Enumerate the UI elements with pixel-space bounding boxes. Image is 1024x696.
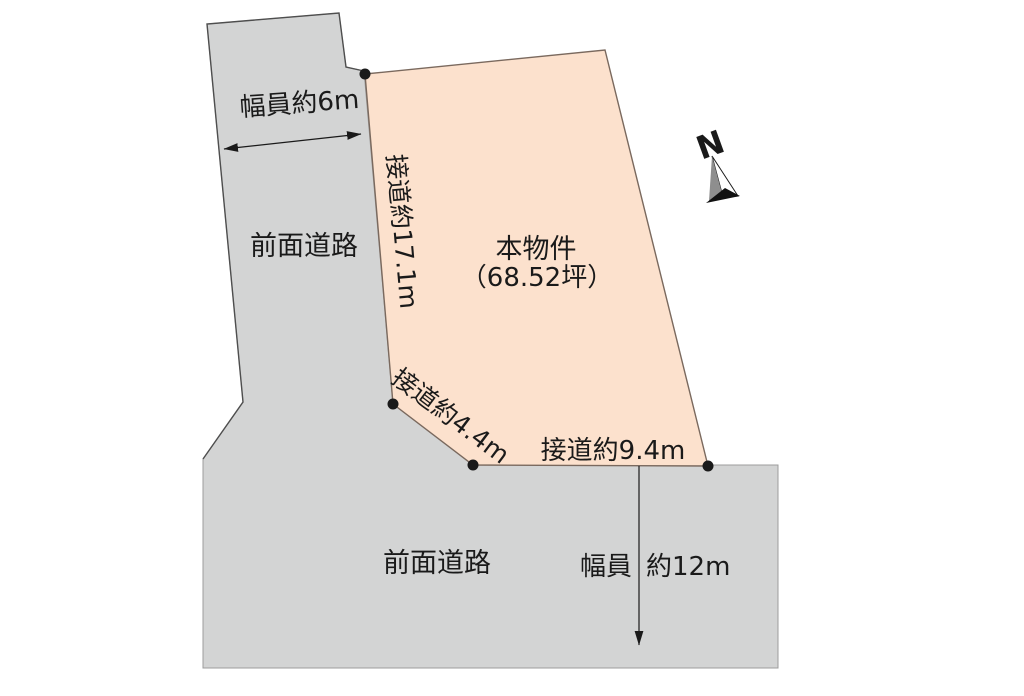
plot-map-page: N 幅員約6m 前面道路 接道約17.1m 本物件 （68.52坪） 接道約4.… xyxy=(0,0,1024,696)
north-label: N xyxy=(691,123,729,168)
parcel-area-label: （68.52坪） xyxy=(461,263,613,293)
boundary-point-northwest xyxy=(360,69,371,80)
boundary-point-southwest xyxy=(468,460,479,471)
road-width-bottom-label: 幅員 xyxy=(580,552,632,582)
north-arrow: N xyxy=(691,123,740,203)
frontage-south-label: 接道約9.4m xyxy=(541,436,686,466)
boundary-point-west xyxy=(388,399,399,410)
road-width-bottom-value: 約12m xyxy=(646,552,730,582)
plot-diagram: N 幅員約6m 前面道路 接道約17.1m 本物件 （68.52坪） 接道約4.… xyxy=(0,0,1024,696)
parcel-name-label: 本物件 xyxy=(496,234,577,265)
front-road-bottom-label: 前面道路 xyxy=(383,548,491,579)
front-road-left-label: 前面道路 xyxy=(250,231,358,262)
boundary-point-southeast xyxy=(703,461,714,472)
